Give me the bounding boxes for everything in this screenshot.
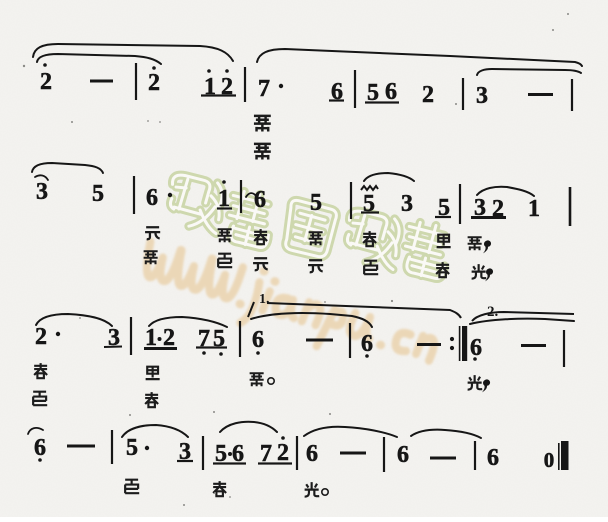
svg-text:1.: 1. <box>259 292 270 307</box>
svg-text:6: 6 <box>306 441 318 467</box>
svg-text:5: 5 <box>310 190 322 216</box>
svg-text:6: 6 <box>34 435 46 461</box>
svg-text:3: 3 <box>36 179 48 205</box>
svg-text:6: 6 <box>487 445 499 471</box>
svg-text:2: 2 <box>148 70 160 96</box>
svg-text:2: 2 <box>277 440 289 466</box>
svg-text:6: 6 <box>385 79 397 105</box>
svg-text:5: 5 <box>126 435 138 461</box>
svg-text:2.: 2. <box>487 304 499 320</box>
svg-text:6: 6 <box>254 187 266 213</box>
svg-text:6: 6 <box>146 185 158 211</box>
svg-text:3: 3 <box>476 83 488 109</box>
svg-text:3: 3 <box>401 191 413 217</box>
svg-text:0: 0 <box>544 448 555 472</box>
svg-text:6: 6 <box>470 335 482 361</box>
svg-text:2: 2 <box>40 69 52 95</box>
svg-text:6: 6 <box>397 442 409 468</box>
svg-text:5: 5 <box>92 181 104 207</box>
svg-text:6: 6 <box>252 327 264 353</box>
svg-text:6: 6 <box>361 331 373 357</box>
svg-text:2: 2 <box>35 324 47 350</box>
svg-text:7: 7 <box>258 76 270 102</box>
svg-text:1: 1 <box>528 196 540 222</box>
svg-text:2: 2 <box>422 82 434 108</box>
